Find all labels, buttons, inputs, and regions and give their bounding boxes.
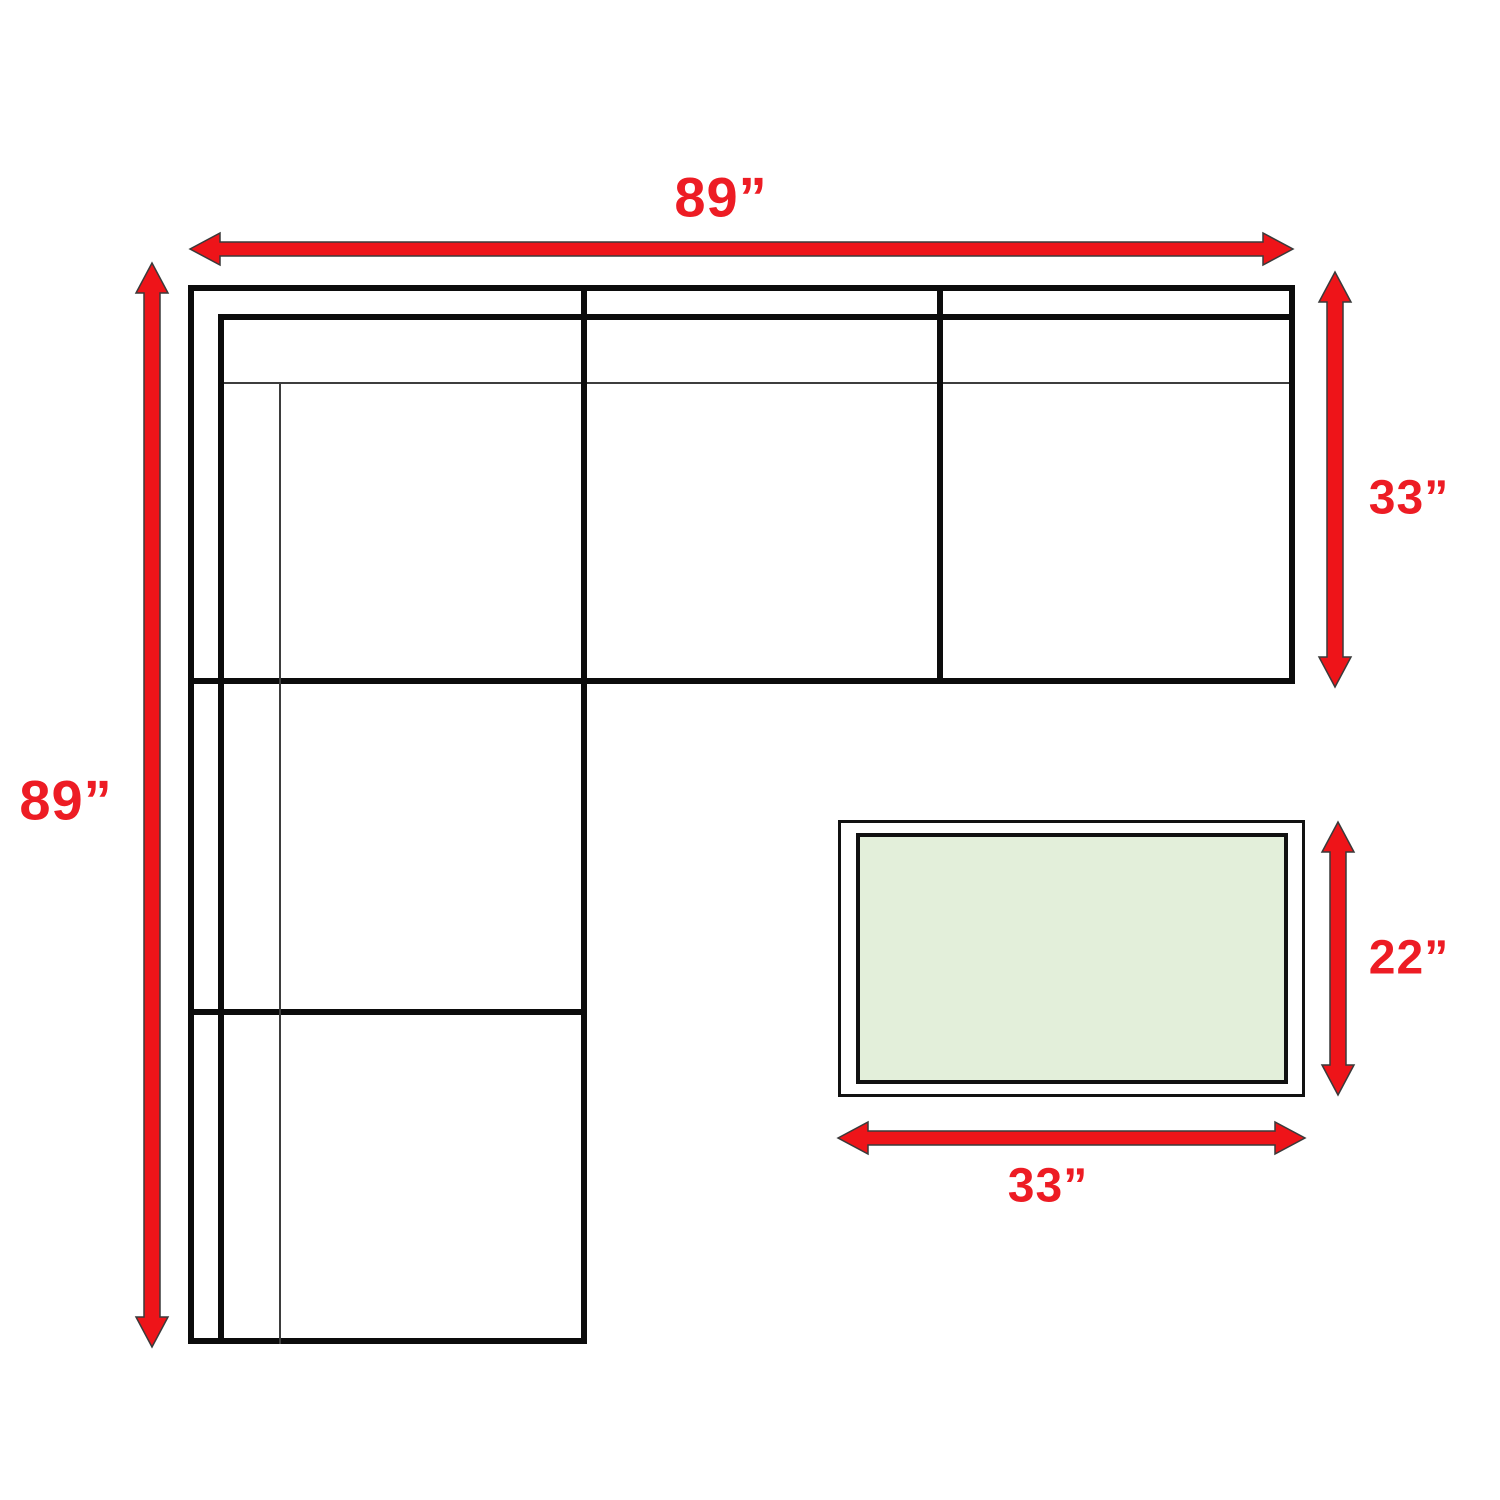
sofa-top-edge bbox=[188, 285, 1295, 291]
sofa-left-wing-seat-divider bbox=[188, 1009, 587, 1015]
table-depth-label: 22” bbox=[1369, 931, 1449, 986]
table-width-label: 33” bbox=[1008, 1159, 1088, 1214]
sofa-corner-seam bbox=[581, 285, 587, 1344]
sofa-right-edge bbox=[1289, 285, 1295, 684]
sofa-width-label: 89” bbox=[674, 165, 767, 230]
sofa-back-cushion-line bbox=[218, 382, 1291, 384]
sofa-backrest-edge bbox=[218, 314, 1295, 320]
sofa-height-arrow bbox=[136, 263, 168, 1347]
table-depth-arrow bbox=[1322, 822, 1354, 1095]
table-width-arrow bbox=[838, 1122, 1305, 1154]
sofa-bottom-edge bbox=[188, 1338, 587, 1344]
sofa-top-wing-bottom-edge bbox=[188, 678, 1295, 684]
sofa-height-label: 89” bbox=[19, 768, 112, 833]
sofa-seat-divider bbox=[937, 285, 943, 684]
sofa-width-arrow bbox=[190, 233, 1293, 265]
sofa-left-cushion-line bbox=[279, 382, 281, 1344]
coffee-table-top bbox=[856, 833, 1288, 1084]
sofa-depth-arrow bbox=[1319, 272, 1351, 687]
furniture-dimension-diagram: 89” 89” 33” 22” 33” bbox=[0, 0, 1500, 1500]
sofa-left-edge bbox=[188, 285, 194, 1344]
sofa-depth-label: 33” bbox=[1369, 471, 1449, 526]
sofa-left-armrest-edge bbox=[218, 314, 224, 1344]
